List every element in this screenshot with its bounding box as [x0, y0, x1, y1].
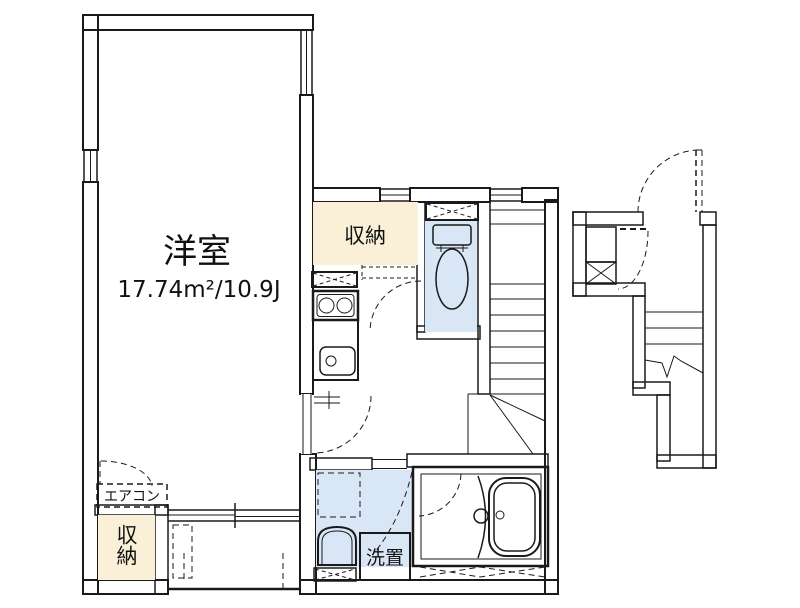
- toilet-door-swing: [370, 281, 421, 332]
- main-room-area: 17.74m²/10.9J: [117, 277, 280, 303]
- washroom: 洗置: [314, 470, 413, 581]
- aircon-label: エアコン: [104, 489, 160, 505]
- mainroom-door-swing: [314, 396, 371, 453]
- stove-burner: [337, 298, 352, 313]
- wall-extstair-left: [633, 296, 645, 388]
- bathtub: [489, 478, 540, 556]
- window-left-wall: [84, 150, 97, 182]
- wall-extstair-right: [703, 225, 716, 468]
- stove-burner: [319, 298, 334, 313]
- doorway-mainroom: [301, 391, 340, 454]
- wall-top-main: [83, 15, 313, 30]
- window-mainroom-right: [301, 30, 312, 95]
- wall-toilet-left: [417, 202, 425, 332]
- kitchen-sink: [320, 347, 355, 375]
- entrance-door: [638, 150, 702, 212]
- closet-upper: 収納: [313, 202, 418, 280]
- main-room-label: 洋室: [163, 232, 231, 272]
- balcony-equipment-outline: [173, 525, 192, 578]
- bathtub-fitting: [496, 511, 504, 519]
- floor-plan-drawing: 収納: [0, 0, 800, 608]
- wall-washroom-top: [310, 458, 372, 470]
- kitchen-vent-box: [312, 272, 357, 287]
- wall-extstair-lower-left: [657, 395, 670, 461]
- laundry-label: 洗置: [366, 547, 404, 569]
- wall-entry-top-left: [573, 212, 643, 225]
- stair-winder: [468, 394, 545, 454]
- stair-treads: [490, 210, 545, 379]
- doorway-washroom: [372, 460, 407, 469]
- balcony-sliding-window: [168, 503, 300, 528]
- wall-bottom-right-section: [300, 580, 558, 594]
- entry-inner-door-swing: [618, 229, 650, 289]
- air-conditioner: エアコン: [97, 461, 167, 507]
- wall-left-lower: [83, 182, 98, 594]
- wall-top-right-a: [313, 188, 380, 202]
- wall-entry-bottom-left: [573, 283, 645, 296]
- main-room: 洋室 17.74m²/10.9J エアコン: [97, 232, 281, 507]
- sink-drain: [326, 356, 336, 366]
- shoe-cabinet: [586, 227, 616, 284]
- external-stair-treads: [645, 312, 703, 377]
- balcony: [168, 503, 300, 589]
- bath-door-swing: [419, 474, 461, 516]
- wall-entry-top-right: [700, 212, 716, 225]
- entry-cross-box: [586, 262, 616, 284]
- closet-upper-label: 収納: [344, 224, 386, 248]
- window-top-a: [380, 189, 410, 201]
- stair-break-symbol: [645, 356, 703, 377]
- floor-plan: 収納: [0, 0, 800, 608]
- wall-mainroom-right: [300, 95, 313, 394]
- toilet-vent-box: [426, 203, 478, 220]
- wall-left-upper: [83, 15, 98, 150]
- aircon-swing: [101, 461, 152, 486]
- bath-floor-curve: [478, 476, 486, 558]
- kitchen-stove: [313, 291, 358, 320]
- wall-bathroom-top: [407, 454, 548, 467]
- wall-top-right-b: [410, 188, 490, 202]
- bath-threshold: [420, 567, 545, 577]
- kitchen: [312, 272, 358, 380]
- closet-lower-label: 収納: [114, 524, 138, 566]
- bathroom: [413, 467, 548, 577]
- closet-lower: 収納: [98, 515, 155, 580]
- wall-stairs-left: [478, 202, 490, 394]
- kitchen-counter: [313, 320, 358, 380]
- window-top-b: [490, 189, 522, 201]
